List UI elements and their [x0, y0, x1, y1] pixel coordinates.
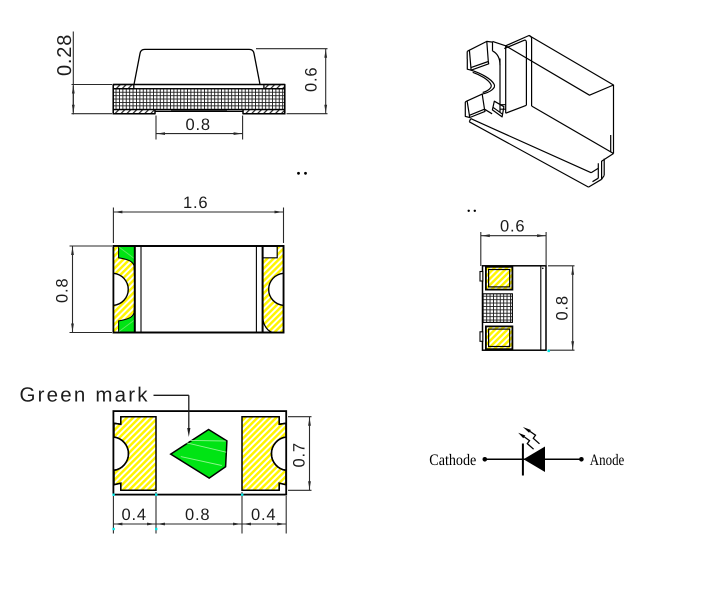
- svg-text:0.6: 0.6: [303, 67, 321, 92]
- svg-text:0.6: 0.6: [500, 218, 525, 236]
- svg-text:0.28: 0.28: [54, 34, 76, 76]
- svg-text:0.8: 0.8: [185, 506, 210, 524]
- svg-text:0.4: 0.4: [122, 506, 147, 524]
- svg-text:0.8: 0.8: [54, 278, 72, 303]
- svg-text:0.8: 0.8: [186, 116, 211, 134]
- svg-text:0.8: 0.8: [554, 295, 572, 320]
- svg-text:Cathode: Cathode: [429, 452, 476, 469]
- svg-text:0.7: 0.7: [291, 442, 309, 467]
- svg-text:Green mark: Green mark: [20, 384, 150, 407]
- svg-text:0.4: 0.4: [251, 506, 276, 524]
- svg-text:1.6: 1.6: [183, 194, 208, 212]
- svg-text:Anode: Anode: [590, 452, 625, 469]
